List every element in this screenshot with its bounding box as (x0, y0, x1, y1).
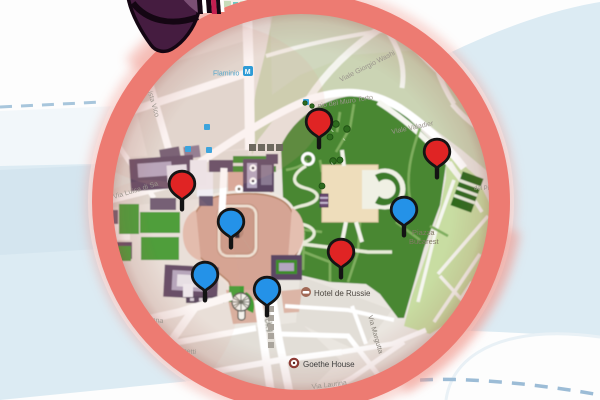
svg-text:Goethe House: Goethe House (303, 360, 355, 369)
svg-text:del Pi: del Pi (474, 186, 489, 192)
svg-text:Flaminio: Flaminio (213, 71, 240, 78)
svg-text:M: M (245, 69, 251, 76)
svg-text:Hotel de Russie: Hotel de Russie (314, 289, 371, 298)
svg-text:Bucarest: Bucarest (409, 237, 440, 246)
svg-text:Piazza: Piazza (412, 228, 435, 237)
